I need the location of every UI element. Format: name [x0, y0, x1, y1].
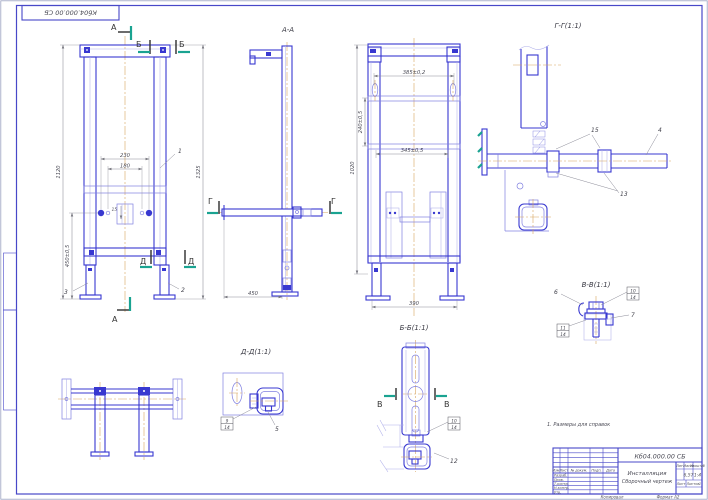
val-massa: 6,57: [683, 473, 693, 479]
col-doc: № докум.: [570, 468, 588, 472]
label-d-d: Д-Д(1:1): [240, 348, 271, 356]
kopiroval-label: Копировал: [601, 495, 624, 500]
dim-front-180: 180: [120, 164, 131, 170]
svg-text:А: А: [111, 23, 117, 32]
title-block: Изм. Лист № докум. Подп. Дата Разраб. Пр…: [553, 448, 705, 500]
svg-text:14: 14: [224, 425, 230, 431]
callout-3: 3: [64, 289, 68, 296]
section-mark-a-bottom: А: [112, 297, 130, 324]
svg-text:14: 14: [451, 425, 457, 431]
dim-bb-345: 345±0,5: [401, 148, 424, 154]
svg-text:11: 11: [560, 325, 566, 331]
doc-type: Сборочный чертеж: [622, 479, 673, 485]
label-v-v: В-В(1:1): [582, 281, 611, 289]
part-name: Инсталляция: [628, 471, 668, 477]
section-mark-d-left: Д: [140, 250, 152, 267]
row-utv: Утв.: [554, 490, 561, 494]
col-podp: Подп.: [591, 468, 601, 472]
dim-front-450: 450±0,5: [65, 244, 71, 267]
svg-text:14: 14: [560, 332, 566, 338]
dim-front-height: 1120: [56, 165, 62, 179]
callout-10-14-foot: 10 14: [448, 417, 460, 431]
col-data: Дата: [605, 468, 615, 472]
section-mark-g-right: Г: [330, 197, 342, 214]
callout-9-14: 9 14: [221, 417, 233, 431]
svg-text:10: 10: [451, 418, 457, 424]
section-mark-d-right: Д: [184, 250, 196, 267]
svg-text:9: 9: [226, 418, 229, 424]
callout-2: 2: [181, 287, 185, 294]
svg-text:В: В: [444, 400, 450, 409]
left-edge-box-2: [4, 310, 17, 410]
view-b-b: 385±0,2 345±0,5 240±0,5 1020 390 Б-Б(1:1…: [350, 38, 464, 332]
lbl-listov: Листов: [686, 482, 700, 486]
dim-front-230: 230: [120, 153, 131, 159]
view-a-a: А-А 450 Г Г: [207, 26, 342, 300]
svg-text:Д: Д: [140, 257, 146, 266]
label-a-a: А-А: [281, 26, 294, 34]
svg-text:Г: Г: [331, 197, 336, 206]
svg-text:А: А: [112, 315, 118, 324]
dim-bb-outer: 1020: [350, 161, 356, 175]
callout-6: 6: [554, 289, 558, 296]
val-masshtab: 1:4: [694, 473, 701, 479]
svg-text:Б: Б: [136, 40, 142, 49]
dim-front-right-height: 1325: [196, 165, 202, 179]
reference-note: 1. Размеры для справок: [547, 422, 610, 428]
callout-4: 4: [658, 127, 662, 134]
dim-bb-240: 240±0,5: [358, 110, 364, 133]
section-mark-b-left: Б: [136, 40, 150, 54]
assembly-drawing: Кб04.000.00 СБ: [0, 0, 708, 500]
view-top: [58, 379, 186, 460]
label-g-g: Г-Г(1:1): [554, 22, 581, 30]
section-mark-v-right: В: [435, 388, 450, 409]
callout-13: 13: [620, 191, 628, 198]
callout-10-14: 10 14: [627, 287, 639, 301]
callout-12: 12: [450, 458, 458, 465]
svg-text:10: 10: [630, 288, 636, 294]
svg-text:Д: Д: [188, 257, 194, 266]
svg-text:В: В: [377, 400, 383, 409]
dim-bb-385: 385±0,2: [403, 70, 426, 76]
view-g-g: Г-Г(1:1): [478, 22, 672, 234]
front-dimensions: 230 180 15 1120 450±0,5 1325: [56, 45, 206, 299]
view-v-v: В-В(1:1) 6 10 14 7 11: [554, 281, 639, 344]
svg-text:Б: Б: [179, 40, 185, 49]
hdr-masshtab: Масштаб: [690, 464, 705, 468]
section-mark-g-left: Г: [207, 197, 219, 214]
view-foot: В В 10 14 12: [377, 340, 460, 472]
section-mark-a-top: А: [111, 23, 131, 40]
top-left-stamp-text: Кб04.000.00 СБ: [44, 8, 97, 16]
section-mark-v-left: В: [377, 388, 396, 409]
callout-1: 1: [178, 148, 182, 155]
format-label: Формат А2: [657, 495, 680, 500]
callout-7: 7: [631, 312, 635, 319]
svg-text:Г: Г: [208, 197, 213, 206]
callout-15: 15: [591, 127, 599, 134]
val-listov: 1: [699, 482, 701, 486]
lbl-list: Лист: [676, 482, 687, 486]
dim-bb-390: 390: [409, 301, 420, 307]
label-b-b: Б-Б(1:1): [400, 324, 429, 332]
view-d-d: Д-Д(1:1) 9 14 5: [221, 348, 288, 433]
drawing-sheet: Кб04.000.00 СБ: [0, 0, 708, 500]
callout-11-14: 11 14: [557, 324, 569, 338]
view-front: 230 180 15 1120 450±0,5 1325 1: [56, 23, 206, 324]
dim-aa-450: 450: [248, 291, 259, 297]
designation: Кб04.000.00 СБ: [634, 453, 685, 461]
callout-5: 5: [275, 426, 279, 433]
svg-text:14: 14: [630, 295, 636, 301]
dim-front-15: 15: [112, 207, 118, 212]
section-mark-b-right: Б: [176, 40, 190, 54]
left-edge-box-1: [4, 253, 17, 310]
col-list: Лист: [559, 468, 570, 472]
bb-dimensions: 385±0,2 345±0,5 240±0,5 1020 390: [350, 45, 457, 310]
